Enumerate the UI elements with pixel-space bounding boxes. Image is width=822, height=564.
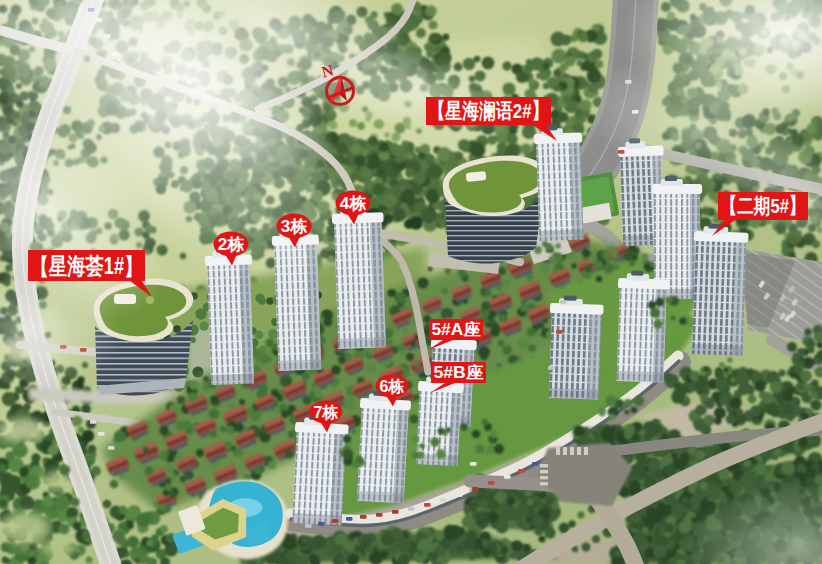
svg-text:6栋: 6栋	[380, 378, 405, 395]
svg-text:【星海澜语2#】: 【星海澜语2#】	[429, 99, 549, 122]
svg-text:【星海荟1#】: 【星海荟1#】	[31, 253, 143, 279]
svg-text:5#A座: 5#A座	[432, 320, 482, 338]
svg-text:【二期5#】: 【二期5#】	[721, 194, 806, 217]
svg-text:4栋: 4栋	[340, 194, 366, 213]
svg-text:7栋: 7栋	[314, 404, 339, 421]
svg-text:2栋: 2栋	[218, 235, 244, 254]
svg-text:5#B座: 5#B座	[434, 363, 485, 381]
svg-text:3栋: 3栋	[281, 217, 307, 236]
